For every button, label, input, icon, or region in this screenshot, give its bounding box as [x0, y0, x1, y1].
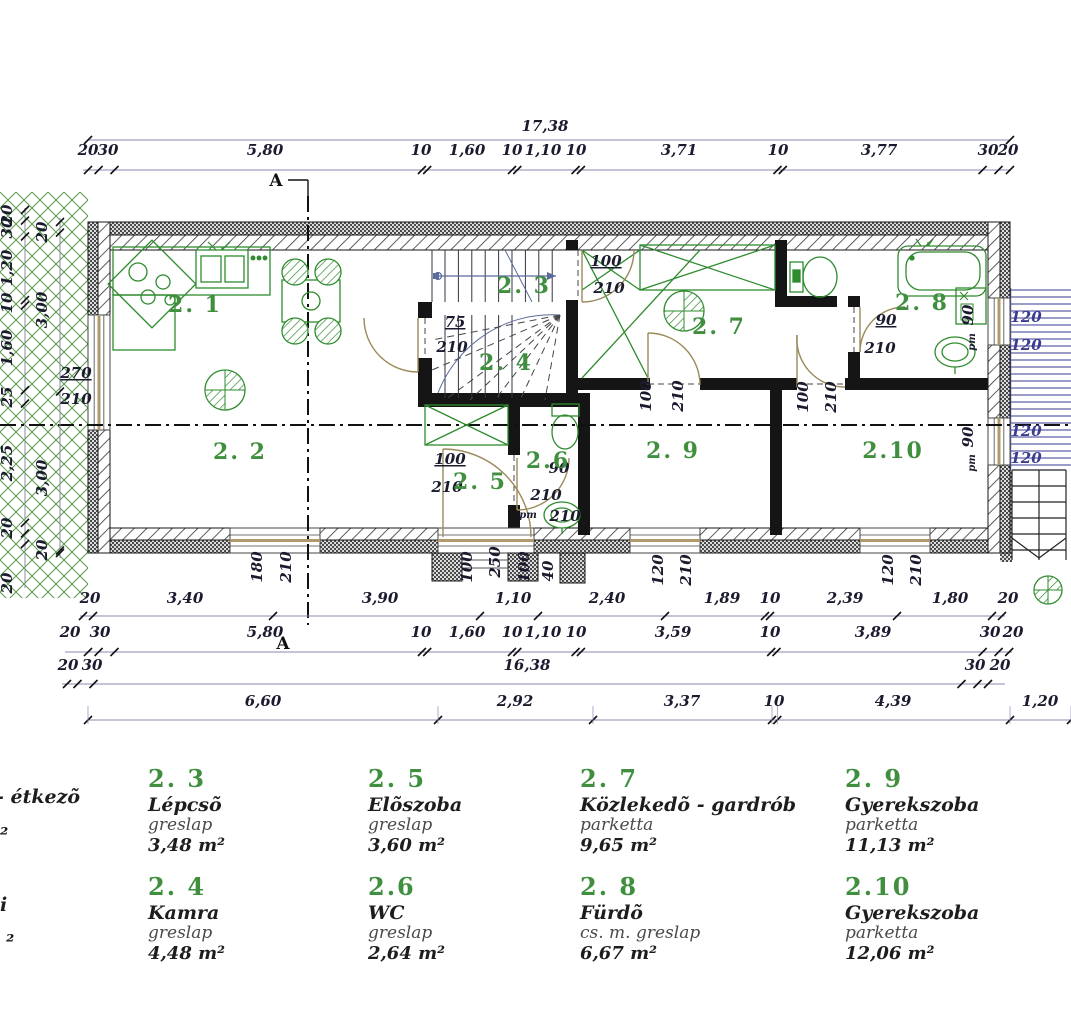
window	[630, 528, 700, 553]
dimension-label: 1,10	[525, 623, 562, 641]
dimension-label: 120	[1010, 336, 1042, 354]
legend-material: parketta	[845, 816, 979, 836]
dimension-label: pm	[519, 510, 537, 521]
legend-entry: 2. 4Kamragreslap4,48 m²	[148, 873, 225, 965]
dimension-label: 210	[669, 380, 687, 413]
entry-porch	[432, 553, 585, 583]
dimension-label: 120	[1010, 449, 1042, 467]
dimension-label: 10	[760, 589, 781, 607]
room-label: 2. 8	[895, 290, 949, 316]
legend-area: 6,67 m²	[580, 944, 700, 965]
legend-number: 2.6	[368, 873, 445, 901]
dimension-label: 10	[768, 141, 789, 159]
dimension-label: 10	[502, 623, 523, 641]
room-label: 2.6	[526, 448, 570, 474]
legend-name: Kamra	[148, 903, 225, 925]
room-label: 2. 3	[497, 273, 551, 299]
legend-entry: 2. 9Gyerekszobaparketta11,13 m²	[845, 765, 979, 857]
dimension-label: 120	[1010, 422, 1042, 440]
room-label: 2. 5	[453, 469, 507, 495]
dimension-label: 210	[907, 554, 925, 587]
dimension-label: 1,60	[449, 141, 486, 159]
dimension-label: 210	[435, 338, 468, 356]
dimension-label: 1,20	[1022, 692, 1059, 710]
legend-material: greslap	[148, 924, 225, 944]
dimension-label: 120	[879, 554, 897, 586]
dimension-label: 2,92	[496, 692, 534, 710]
dimension-label: 100	[515, 551, 533, 583]
legend-number: 2. 9	[845, 765, 979, 793]
dimension-label: pm	[967, 333, 978, 351]
dimension-label: 90	[876, 311, 897, 329]
dimension-label: 100	[434, 450, 466, 468]
dimension-label: 210	[863, 339, 896, 357]
dimension-label: 2,39	[826, 589, 864, 607]
dimension-label: 17,38	[522, 117, 570, 135]
dimension-label: 20	[33, 539, 51, 561]
room-label: 2. 4	[479, 350, 533, 376]
legend-cutoff-fragment: i	[0, 894, 7, 916]
room-label: 2. 1	[168, 292, 222, 318]
dimension-label: 30	[978, 141, 999, 159]
lamp-symbol	[1034, 576, 1062, 604]
dimension-label: 30	[82, 656, 103, 674]
plan-labels: 17,3820305,80101,60101,10103,71103,77302…	[0, 117, 1059, 710]
floorplan-page: 17,3820305,80101,60101,10103,71103,77302…	[0, 0, 1071, 1024]
toilet-bath-icon	[790, 257, 837, 297]
dimension-label: 20	[59, 623, 81, 641]
window	[230, 528, 320, 553]
legend-area: 3,48 m²	[148, 836, 225, 857]
dimension-label: 250	[486, 546, 504, 579]
dimension-label: 1,89	[704, 589, 741, 607]
legend-cutoff-fragment: ²	[6, 931, 14, 953]
dimension-label: 100	[637, 380, 655, 412]
toilet-wc-icon	[552, 404, 579, 449]
legend-number: 2. 5	[368, 765, 462, 793]
legend-area: 2,64 m²	[368, 944, 445, 965]
dimension-label: 20	[989, 656, 1011, 674]
legend-entry: 2.10Gyerekszobaparketta12,06 m²	[845, 873, 979, 965]
dimension-label: 3,89	[855, 623, 892, 641]
section-mark: A	[275, 634, 290, 654]
dimension-label: 2,40	[588, 589, 626, 607]
legend-cutoff-fragment: ²	[0, 824, 8, 846]
dimension-label: 90	[959, 426, 977, 447]
dimension-label: 10	[566, 623, 587, 641]
dimension-label: 5,80	[247, 141, 284, 159]
dimension-label: 20	[77, 141, 99, 159]
legend-name: WC	[368, 903, 445, 925]
dimension-label: 40	[539, 560, 557, 581]
dimension-label: 1,60	[0, 329, 16, 366]
dimension-label: 3,59	[655, 623, 692, 641]
dimension-label: 10	[411, 623, 432, 641]
legend-area: 11,13 m²	[845, 836, 979, 857]
dimension-label: 30	[965, 656, 986, 674]
section-mark: A	[268, 171, 283, 191]
legend-entry: 2. 5Elõszobagreslap3,60 m²	[368, 765, 462, 857]
legend-area: 12,06 m²	[845, 944, 979, 965]
floor-plan-drawing: 17,3820305,80101,60101,10103,71103,77302…	[0, 0, 1071, 760]
window	[988, 298, 1010, 345]
dimension-label: 30	[90, 623, 111, 641]
dimension-label: 16,38	[504, 656, 552, 674]
room-label: 2. 9	[646, 438, 700, 464]
dimension-label: 20	[0, 517, 16, 539]
legend-name: Közlekedõ - gardrób	[580, 795, 796, 817]
dimension-label: 1,20	[0, 249, 16, 286]
dimension-label: 10	[502, 141, 523, 159]
door-room10	[797, 335, 845, 387]
door-room9	[648, 333, 700, 385]
dimension-label: 3,00	[33, 459, 51, 496]
legend-material: cs. m. greslap	[580, 924, 700, 944]
dimension-label: 10	[764, 692, 785, 710]
dimension-label: 20	[79, 589, 101, 607]
dimension-label: 3,90	[362, 589, 399, 607]
legend-material: greslap	[368, 816, 462, 836]
dimension-label: 4,39	[875, 692, 912, 710]
dimension-label: 10	[760, 623, 781, 641]
legend-cutoff-fragment: - étkezõ	[0, 786, 80, 808]
dimension-label: 1,10	[525, 141, 562, 159]
legend-entry: 2. 7Közlekedõ - gardróbparketta9,65 m²	[580, 765, 796, 857]
dimension-label: 1,60	[449, 623, 486, 641]
dimension-label: 3,40	[167, 589, 204, 607]
legend-number: 2. 7	[580, 765, 796, 793]
lamp-symbol	[205, 370, 245, 410]
dimension-label: 210	[529, 486, 562, 504]
legend-entry: 2. 8Fürdõcs. m. greslap6,67 m²	[580, 873, 700, 965]
room-label: 2. 7	[692, 314, 746, 340]
dimension-label: 20	[997, 589, 1019, 607]
dimension-label: 3,37	[664, 692, 701, 710]
legend-name: Gyerekszoba	[845, 903, 979, 925]
dimension-label: 10	[566, 141, 587, 159]
legend-entry: 2.6WCgreslap2,64 m²	[368, 873, 445, 965]
dimension-label: 210	[677, 554, 695, 587]
dimension-label: 100	[458, 551, 476, 583]
legend-name: Elõszoba	[368, 795, 462, 817]
dimension-label: 10	[0, 292, 16, 313]
legend-name: Gyerekszoba	[845, 795, 979, 817]
dimension-label: 75	[445, 313, 466, 331]
dimension-label: 270	[59, 364, 92, 382]
legend-number: 2.10	[845, 873, 979, 901]
dimension-label: 120	[649, 554, 667, 586]
dimension-label: 20	[997, 141, 1019, 159]
legend-number: 2. 8	[580, 873, 700, 901]
room-label: 2. 2	[213, 439, 267, 465]
legend-name: Fürdõ	[580, 903, 700, 925]
dimension-label: 30	[0, 217, 16, 238]
room-label: 2.10	[862, 438, 924, 464]
legend-material: parketta	[580, 816, 796, 836]
dimension-label: 100	[590, 252, 622, 270]
dimension-label: 210	[59, 390, 92, 408]
dimension-label: 3,77	[861, 141, 898, 159]
dimension-label: 120	[1010, 308, 1042, 326]
dimension-label: 3,71	[661, 141, 698, 159]
legend-area: 4,48 m²	[148, 944, 225, 965]
legend-material: parketta	[845, 924, 979, 944]
legend-name: Lépcsõ	[148, 795, 225, 817]
dimension-label: pm	[967, 454, 978, 472]
dimension-label: 10	[411, 141, 432, 159]
dimension-label: 30	[98, 141, 119, 159]
dimension-label: 90	[959, 304, 977, 325]
legend-number: 2. 4	[148, 873, 225, 901]
dimension-label: 210	[548, 507, 581, 525]
dimension-label: 20	[57, 656, 79, 674]
dining-table	[282, 259, 341, 344]
legend-area: 3,60 m²	[368, 836, 462, 857]
dimension-label: 210	[277, 551, 295, 584]
dimension-label: 20	[0, 572, 16, 594]
dimension-label: 210	[822, 381, 840, 414]
dimension-label: 1,80	[932, 589, 969, 607]
window	[860, 528, 930, 553]
legend-entry: 2. 3Lépcsõgreslap3,48 m²	[148, 765, 225, 857]
legend-material: greslap	[368, 924, 445, 944]
legend-material: greslap	[148, 816, 225, 836]
dimension-label: 25	[0, 387, 16, 409]
dimension-label: 20	[33, 221, 51, 243]
dimension-label: 210	[592, 279, 625, 297]
dimension-label: 1,10	[495, 589, 532, 607]
legend-area: 9,65 m²	[580, 836, 796, 857]
dimension-label: 30	[980, 623, 1001, 641]
dimension-label: 6,60	[245, 692, 282, 710]
dimension-label: 2,25	[0, 445, 16, 483]
legend-number: 2. 3	[148, 765, 225, 793]
dimension-label: 20	[1002, 623, 1024, 641]
dimension-label: 180	[248, 551, 266, 583]
dimension-label: 3,00	[33, 291, 51, 328]
door-pantry	[364, 318, 418, 372]
dimension-label: 100	[794, 381, 812, 413]
